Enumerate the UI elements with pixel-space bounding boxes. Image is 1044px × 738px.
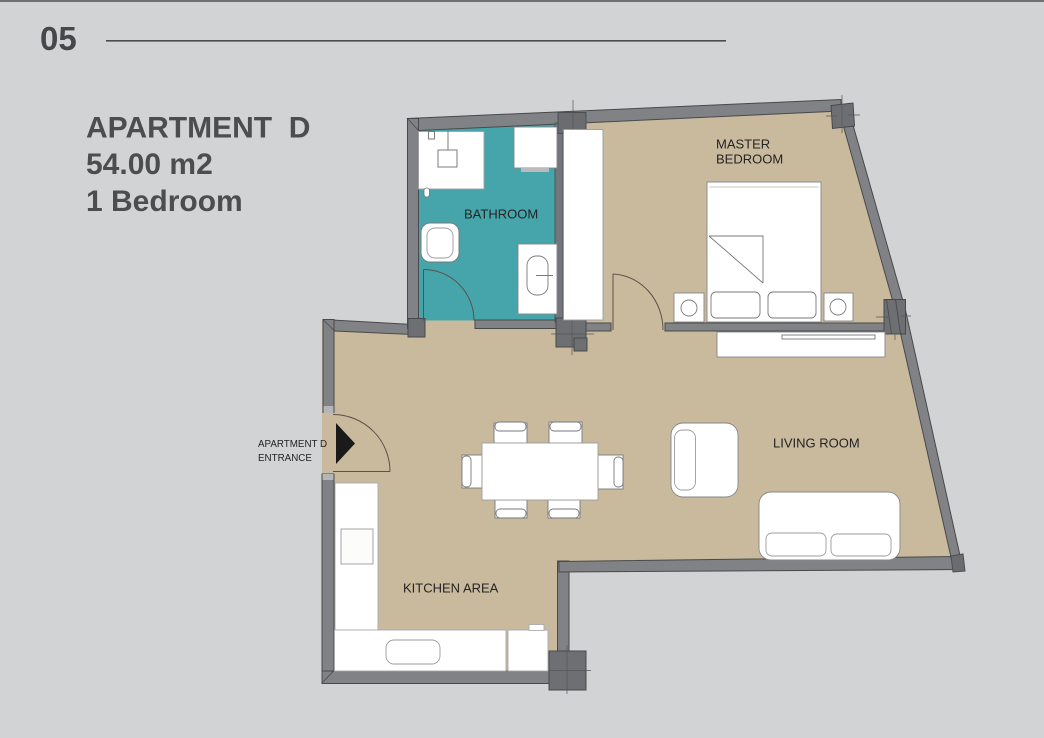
svg-text:05: 05: [40, 20, 77, 57]
svg-text:1 Bedroom: 1 Bedroom: [86, 185, 243, 218]
svg-text:BEDROOM: BEDROOM: [716, 152, 783, 167]
svg-text:KITCHEN AREA: KITCHEN AREA: [403, 581, 499, 596]
svg-text:ENTRANCE: ENTRANCE: [258, 453, 312, 464]
svg-text:APARTMENT D: APARTMENT D: [86, 112, 310, 145]
svg-text:APARTMENT D: APARTMENT D: [258, 439, 327, 450]
svg-text:MASTER: MASTER: [716, 137, 770, 152]
svg-text:54.00 m2: 54.00 m2: [86, 148, 213, 181]
svg-text:LIVING ROOM: LIVING ROOM: [773, 436, 860, 451]
svg-text:BATHROOM: BATHROOM: [464, 207, 538, 222]
